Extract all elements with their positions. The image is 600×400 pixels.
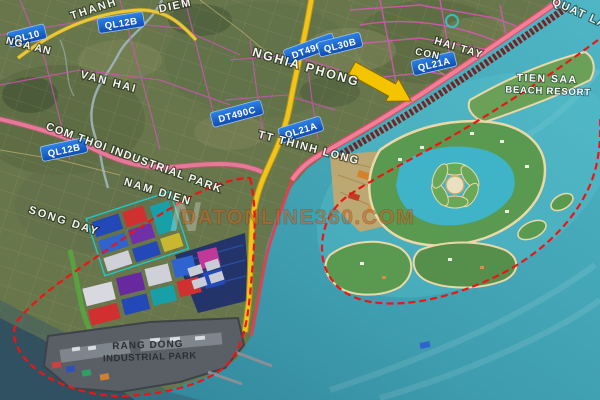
south-island-2 [414, 243, 517, 288]
map-canvas: QL10 QL12B DT490C QL30B QL21A DT490C QL1… [0, 0, 600, 400]
label-tien-sa-line1: TIEN SAA [516, 72, 577, 86]
watermark-text: DATONLINE360.COM [181, 206, 415, 229]
map-screenshot: QL10 QL12B DT490C QL30B QL21A DT490C QL1… [0, 0, 600, 400]
